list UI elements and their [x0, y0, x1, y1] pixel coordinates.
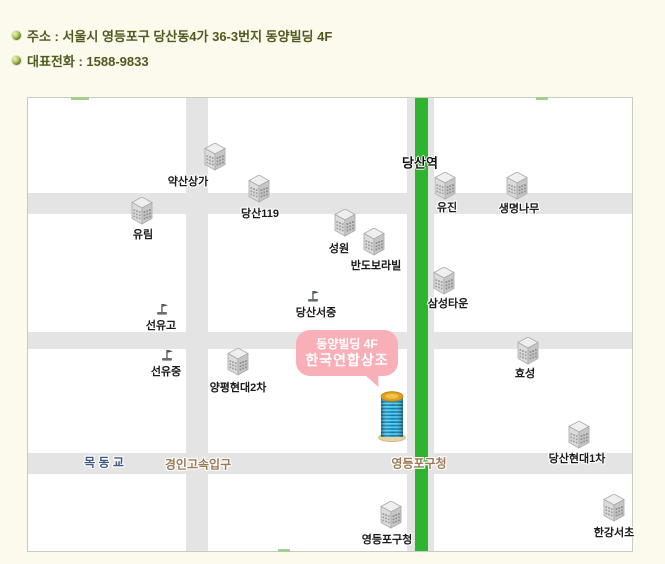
building-icon — [433, 267, 455, 295]
building-label: 한강서초 — [594, 524, 634, 540]
building-label: 유진 — [437, 199, 457, 215]
building-icon — [568, 421, 590, 449]
building-label: 약산상가 — [168, 173, 208, 189]
building-icon — [227, 348, 249, 376]
road-name-label: 경인고속입구 — [165, 456, 231, 473]
building-icon — [603, 494, 625, 522]
road-name-label: 영등포구청 — [391, 455, 446, 472]
school-flag-icon — [160, 348, 174, 362]
building-icon — [434, 172, 456, 200]
building-label: 유림 — [133, 226, 153, 242]
callout-company-name: 한국연합상조 — [305, 352, 388, 370]
building-label: 양평현대2차 — [210, 379, 267, 395]
building-icon — [380, 501, 402, 529]
school-label: 선유고 — [146, 317, 176, 333]
border-accent — [71, 97, 89, 100]
target-callout: 동양빌딩 4F 한국연합상조 — [296, 330, 398, 376]
school-label: 선유중 — [151, 363, 181, 379]
building-label: 당산현대1차 — [549, 450, 606, 466]
border-accent — [536, 97, 548, 100]
building-icon — [517, 337, 539, 365]
building-label: 당산119 — [241, 205, 279, 221]
building-icon — [363, 228, 385, 256]
border-accent — [278, 549, 290, 552]
building-icon — [131, 197, 153, 225]
target-building-tower-icon — [378, 389, 406, 442]
school-label: 당산서중 — [296, 304, 336, 320]
address-line: 주소 : 서울시 영등포구 당산동4가 36-3번지 동양빌딩 4F — [27, 26, 332, 45]
station-label-dangsan: 당산역 — [402, 153, 438, 172]
phone-bullet-icon — [12, 56, 21, 65]
building-label: 효성 — [515, 365, 535, 381]
phone-line: 대표전화 : 1588-9833 — [27, 51, 149, 70]
building-icon — [204, 143, 226, 171]
building-label: 반도보라빌 — [351, 257, 402, 273]
building-label: 삼성타운 — [428, 295, 468, 311]
building-icon — [248, 175, 270, 203]
building-label: 영등포구청 — [362, 531, 413, 547]
building-icon — [334, 209, 356, 237]
address-bullet-icon — [12, 31, 21, 40]
callout-building-name: 동양빌딩 4F — [316, 337, 378, 352]
school-flag-icon — [306, 289, 320, 303]
building-icon — [506, 172, 528, 200]
road-name-label: 목 동 교 — [84, 454, 124, 471]
school-flag-icon — [155, 302, 169, 316]
map: 당산역 약산상가당산119유림성원반도보라빌유진생명나무삼성타운양평현대2차효성… — [27, 97, 633, 552]
building-label: 성원 — [329, 240, 349, 256]
road-horizontal-top — [28, 193, 632, 214]
building-label: 생명나무 — [499, 200, 539, 216]
